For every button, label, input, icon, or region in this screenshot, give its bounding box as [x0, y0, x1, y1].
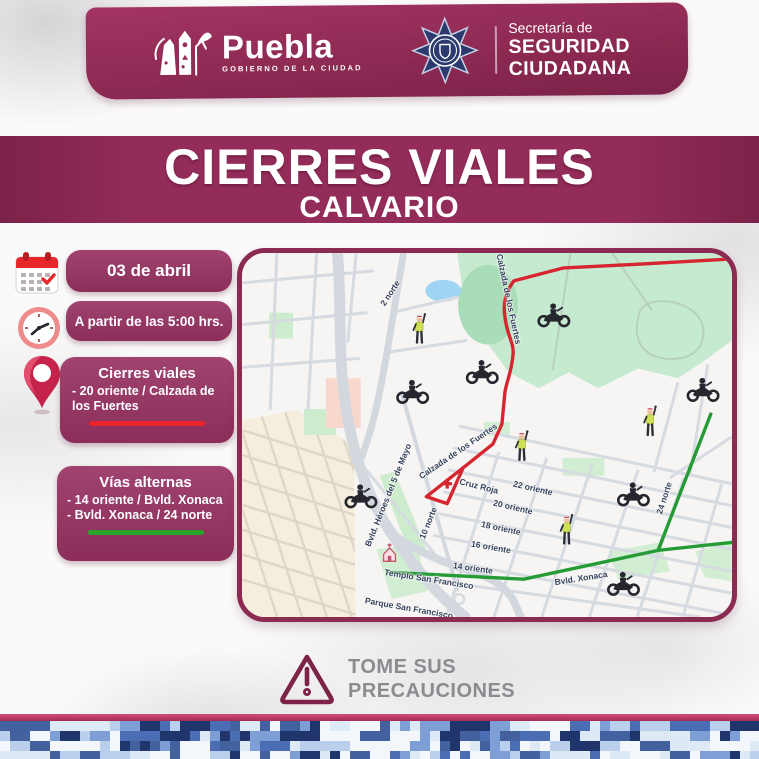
camo-pixel	[320, 731, 330, 741]
camo-pixel	[60, 741, 70, 751]
camo-pixel	[470, 731, 480, 741]
camo-pixel	[460, 751, 470, 759]
camo-pixel	[550, 751, 560, 759]
camo-pixel	[680, 721, 690, 731]
camo-pixel	[320, 721, 330, 731]
camo-pixel	[620, 751, 630, 759]
camo-pixel	[740, 741, 750, 751]
camo-pixel	[150, 731, 160, 741]
camo-pixel	[40, 751, 50, 759]
camo-pixel	[660, 741, 670, 751]
secretaria-line3: CIUDADANA	[509, 58, 632, 79]
camo-pixel	[10, 731, 20, 741]
camo-pixel	[630, 741, 640, 751]
camo-pixel	[260, 721, 270, 731]
camo-pixel	[660, 721, 670, 731]
camo-pixel	[530, 741, 540, 751]
camo-pixel	[130, 731, 140, 741]
camo-pixel	[320, 751, 330, 759]
camo-pixel	[170, 731, 180, 741]
camo-pixel	[660, 731, 670, 741]
camo-pixel	[350, 751, 360, 759]
camo-pixel	[160, 721, 170, 731]
footer-accent-rule	[0, 714, 759, 721]
secretaria-line1: Secretaría de	[508, 20, 631, 35]
camo-pixel	[30, 741, 40, 751]
camo-pixel	[470, 721, 480, 731]
camo-pixel	[200, 741, 210, 751]
camo-pixel	[610, 741, 620, 751]
camo-pixel	[530, 721, 540, 731]
camo-pixel	[270, 741, 280, 751]
camo-pixel	[690, 741, 700, 751]
camo-pixel	[410, 751, 420, 759]
camo-pixel	[640, 721, 650, 731]
camo-pixel	[390, 741, 400, 751]
camo-pixel	[380, 721, 390, 731]
camo-pixel	[200, 751, 210, 759]
camo-pixel	[230, 751, 240, 759]
camo-pixel	[0, 731, 10, 741]
camo-pixel	[180, 741, 190, 751]
camo-pixel	[450, 721, 460, 731]
camo-pixel	[600, 741, 610, 751]
camo-pixel	[350, 741, 360, 751]
camo-pixel	[670, 731, 680, 741]
camo-pixel	[80, 751, 90, 759]
camo-pixel	[580, 731, 590, 741]
camo-pixel	[590, 751, 600, 759]
date-label: 03 de abril	[107, 261, 191, 281]
camo-pixel	[720, 741, 730, 751]
camo-pixel	[430, 751, 440, 759]
camo-pixel	[640, 741, 650, 751]
camo-pixel	[510, 721, 520, 731]
camo-pixel	[0, 741, 10, 751]
camo-pixel	[740, 721, 750, 731]
camo-pixel	[240, 721, 250, 731]
camo-pixel	[500, 731, 510, 741]
camo-pixel	[210, 721, 220, 731]
camo-pixel	[710, 751, 720, 759]
camo-pixel	[750, 741, 759, 751]
camo-pixel	[730, 721, 740, 731]
camo-pixel	[10, 741, 20, 751]
camo-pixel	[650, 751, 660, 759]
time-badge: A partir de las 5:00 hrs.	[66, 301, 232, 341]
camo-pixel	[670, 741, 680, 751]
camo-pixel	[570, 751, 580, 759]
camo-pixel	[290, 751, 300, 759]
camo-pixel	[70, 751, 80, 759]
camo-pixel	[640, 731, 650, 741]
camo-pixel	[390, 731, 400, 741]
camo-pixel	[560, 741, 570, 751]
camo-pixel	[700, 731, 710, 741]
header-divider	[494, 26, 496, 74]
camo-pixel	[170, 721, 180, 731]
camo-pixel	[590, 731, 600, 741]
camo-pixel	[240, 741, 250, 751]
camo-pixel	[540, 741, 550, 751]
camo-pixel	[460, 741, 470, 751]
camo-pixel	[380, 741, 390, 751]
camo-pixel	[160, 751, 170, 759]
camo-pixel	[600, 731, 610, 741]
alternates-item-1: - 14 oriente / Bvld. Xonaca	[67, 493, 224, 508]
location-pin-icon	[18, 352, 66, 416]
camo-pixel	[130, 751, 140, 759]
camo-pixel	[360, 751, 370, 759]
camo-pixel	[70, 721, 80, 731]
camo-pixel	[370, 741, 380, 751]
camo-pixel	[650, 731, 660, 741]
camo-pixel	[200, 721, 210, 731]
camo-pixel	[110, 721, 120, 731]
camo-pixel	[570, 721, 580, 731]
alternates-item-2: - Bvld. Xonaca / 24 norte	[67, 508, 224, 523]
camo-pixel	[410, 731, 420, 741]
camo-pixel	[450, 731, 460, 741]
camo-pixel	[600, 721, 610, 731]
camo-pixel	[570, 741, 580, 751]
camo-pixel	[680, 751, 690, 759]
camo-pixel	[300, 721, 310, 731]
camo-pixel	[70, 731, 80, 741]
camo-pixel	[530, 751, 540, 759]
camo-pixel	[80, 721, 90, 731]
camo-pixel	[650, 721, 660, 731]
camo-pixel	[330, 721, 340, 731]
camo-pixel	[260, 731, 270, 741]
camo-pixel	[240, 731, 250, 741]
camo-pixel	[330, 741, 340, 751]
camo-pixel	[400, 751, 410, 759]
camo-pixel	[460, 721, 470, 731]
closures-title: Cierres viales	[72, 365, 222, 382]
camo-pixel	[410, 741, 420, 751]
camo-pixel	[60, 751, 70, 759]
camo-pixel	[80, 741, 90, 751]
camo-pixel	[580, 721, 590, 731]
camo-pixel	[490, 721, 500, 731]
camo-pixel	[450, 741, 460, 751]
camo-pixel	[730, 751, 740, 759]
camo-pixel	[300, 751, 310, 759]
camo-pixel	[430, 741, 440, 751]
header-banner: Puebla GOBIERNO DE LA CIUDAD Secretaría …	[86, 2, 689, 99]
camo-pixel	[110, 751, 120, 759]
camo-pixel	[300, 731, 310, 741]
camo-pixel	[280, 751, 290, 759]
camo-pixel	[10, 751, 20, 759]
camo-pixel	[310, 731, 320, 741]
camo-pixel	[580, 741, 590, 751]
secretaria-line2: SEGURIDAD	[508, 37, 631, 58]
camo-pixel	[730, 731, 740, 741]
camo-pixel	[710, 731, 720, 741]
camo-pixel	[610, 751, 620, 759]
camo-pixel	[120, 741, 130, 751]
camo-pixel	[480, 721, 490, 731]
camo-pixel	[50, 731, 60, 741]
camo-pixel	[280, 741, 290, 751]
camo-pixel	[440, 721, 450, 731]
camo-pixel	[20, 731, 30, 741]
camo-pixel	[460, 731, 470, 741]
camo-pixel	[510, 731, 520, 741]
camo-pixel	[40, 731, 50, 741]
camo-pixel	[620, 741, 630, 751]
camo-pixel	[520, 731, 530, 741]
camo-pixel	[520, 741, 530, 751]
road-closure-map: 2 norteCalzada de los FuertesCalzada de …	[237, 248, 737, 622]
camo-pixel	[370, 731, 380, 741]
camo-pixel	[150, 721, 160, 731]
camo-pixel	[480, 741, 490, 751]
camo-pixel	[510, 751, 520, 759]
camo-pixel	[190, 721, 200, 731]
camo-pixel	[610, 721, 620, 731]
camo-pixel	[90, 731, 100, 741]
camo-pixel	[360, 741, 370, 751]
camo-pixel	[650, 741, 660, 751]
camo-pixel	[400, 741, 410, 751]
camo-pixel	[210, 731, 220, 741]
camo-pixel	[10, 721, 20, 731]
camo-pixel	[750, 721, 759, 731]
camo-pixel	[630, 751, 640, 759]
camo-pixel	[140, 741, 150, 751]
camo-pixel	[250, 741, 260, 751]
camo-pixel	[90, 751, 100, 759]
camo-pixel	[380, 731, 390, 741]
warning-triangle-icon	[278, 652, 336, 706]
camo-pixel	[540, 731, 550, 741]
camo-pixel	[100, 751, 110, 759]
camo-pixel	[140, 751, 150, 759]
camo-pixel	[110, 741, 120, 751]
camo-pixel	[250, 721, 260, 731]
camo-pixel	[360, 731, 370, 741]
camo-pixel	[400, 721, 410, 731]
camo-pixel	[390, 721, 400, 731]
camo-pixel	[370, 721, 380, 731]
camo-pixel	[700, 721, 710, 731]
camo-pixel	[420, 741, 430, 751]
camo-pixel	[170, 741, 180, 751]
puebla-city-logo: Puebla GOBIERNO DE LA CIUDAD	[152, 23, 363, 81]
camo-pixel	[180, 721, 190, 731]
camo-pixel	[240, 751, 250, 759]
closures-item: - 20 oriente / Calzada de los Fuertes	[72, 384, 222, 414]
camo-pixel	[490, 751, 500, 759]
alternates-title: Vías alternas	[67, 474, 224, 491]
camo-pixel	[190, 741, 200, 751]
camo-pixel	[90, 741, 100, 751]
title-band: CIERRES VIALES CALVARIO	[0, 136, 759, 223]
camo-pixel	[120, 751, 130, 759]
police-badge-icon	[408, 14, 481, 87]
camo-pixel	[490, 741, 500, 751]
camo-pixel	[450, 751, 460, 759]
camo-pixel	[480, 731, 490, 741]
time-label: A partir de las 5:00 hrs.	[75, 314, 224, 329]
alternate-route-swatch	[88, 530, 204, 535]
camo-pixel	[380, 751, 390, 759]
camo-pixel	[750, 731, 759, 741]
closures-badge: Cierres viales - 20 oriente / Calzada de…	[60, 357, 234, 443]
camo-pixel	[280, 731, 290, 741]
camo-pixel	[560, 751, 570, 759]
camo-pixel	[420, 721, 430, 731]
camo-pixel	[300, 741, 310, 751]
camo-pixel	[30, 721, 40, 731]
camo-pixel	[540, 751, 550, 759]
camo-pixel	[220, 731, 230, 741]
camo-pixel	[140, 721, 150, 731]
camo-pixel	[590, 741, 600, 751]
camo-pixel	[630, 721, 640, 731]
camo-pixel	[340, 731, 350, 741]
camo-pixel	[140, 731, 150, 741]
infographic-page: Puebla GOBIERNO DE LA CIUDAD Secretaría …	[0, 0, 759, 759]
camo-pixel	[630, 731, 640, 741]
camo-pixel	[670, 721, 680, 731]
camo-pixel	[430, 731, 440, 741]
camo-pattern-strip	[0, 721, 759, 759]
camo-pixel	[290, 741, 300, 751]
camo-pixel	[370, 751, 380, 759]
camo-pixel	[220, 741, 230, 751]
camo-pixel	[270, 751, 280, 759]
camo-pixel	[720, 721, 730, 731]
camo-pixel	[260, 741, 270, 751]
camo-pixel	[660, 751, 670, 759]
camo-pixel	[250, 731, 260, 741]
camo-pixel	[680, 731, 690, 741]
camo-pixel	[560, 731, 570, 741]
camo-pixel	[730, 741, 740, 751]
camo-pixel	[180, 731, 190, 741]
camo-pixel	[350, 731, 360, 741]
camo-pixel	[260, 751, 270, 759]
closure-route-swatch	[89, 421, 205, 426]
camo-pixel	[410, 721, 420, 731]
warning-text: TOME SUS PRECAUCIONES	[348, 655, 515, 703]
camo-pixel	[230, 721, 240, 731]
camo-pixel	[580, 751, 590, 759]
camo-pixel	[680, 741, 690, 751]
camo-pixel	[280, 721, 290, 731]
camo-pixel	[690, 751, 700, 759]
camo-pixel	[440, 741, 450, 751]
camo-pixel	[700, 741, 710, 751]
page-subtitle: CALVARIO	[0, 193, 759, 223]
camo-pixel	[420, 731, 430, 741]
camo-pixel	[70, 741, 80, 751]
camo-pixel	[190, 731, 200, 741]
camo-pixel	[560, 721, 570, 731]
camo-pixel	[130, 741, 140, 751]
camo-pixel	[60, 721, 70, 731]
camo-pixel	[310, 741, 320, 751]
camo-pixel	[20, 751, 30, 759]
camo-pixel	[290, 721, 300, 731]
camo-pixel	[130, 721, 140, 731]
camo-pixel	[320, 741, 330, 751]
camo-pixel	[740, 731, 750, 741]
camo-pixel	[0, 721, 10, 731]
camo-pixel	[120, 731, 130, 741]
camo-pixel	[190, 751, 200, 759]
camo-pixel	[180, 751, 190, 759]
camo-pixel	[710, 741, 720, 751]
camo-pixel	[590, 721, 600, 731]
camo-pixel	[220, 721, 230, 731]
camo-pixel	[720, 731, 730, 741]
camo-pixel	[500, 741, 510, 751]
camo-pixel	[100, 741, 110, 751]
camo-pixel	[250, 751, 260, 759]
camo-pixel	[470, 751, 480, 759]
camo-pixel	[750, 751, 759, 759]
camo-pixel	[550, 731, 560, 741]
camo-pixel	[420, 751, 430, 759]
camo-pixel	[210, 741, 220, 751]
camo-pixel	[330, 731, 340, 741]
camo-pixel	[30, 731, 40, 741]
camo-pixel	[0, 751, 10, 759]
camo-pixel	[160, 731, 170, 741]
camo-pixel	[620, 731, 630, 741]
camo-pixel	[310, 751, 320, 759]
camo-pixel	[50, 721, 60, 731]
camo-pixel	[50, 751, 60, 759]
camo-pixel	[150, 741, 160, 751]
camo-pixel	[570, 731, 580, 741]
secretaria-logotype: Secretaría de SEGURIDAD CIUDADANA	[508, 20, 631, 79]
camo-pixel	[700, 751, 710, 759]
camo-pixel	[610, 731, 620, 741]
camo-pixel	[530, 731, 540, 741]
camo-pixel	[60, 731, 70, 741]
camo-pixel	[670, 751, 680, 759]
calendar-icon	[12, 249, 62, 297]
page-title: CIERRES VIALES	[0, 141, 759, 193]
camo-pixel	[330, 751, 340, 759]
camo-pixel	[40, 741, 50, 751]
camo-pixel	[350, 721, 360, 731]
camo-pixel	[690, 731, 700, 741]
camo-pixel	[490, 731, 500, 741]
camo-pixel	[80, 731, 90, 741]
camo-pixel	[20, 741, 30, 751]
puebla-tagline: GOBIERNO DE LA CIUDAD	[222, 63, 363, 73]
camo-pixel	[550, 741, 560, 751]
camo-pixel	[510, 741, 520, 751]
camo-pixel	[310, 721, 320, 731]
warning-line1: TOME SUS	[348, 655, 515, 679]
camo-pixel	[160, 741, 170, 751]
camo-pixel	[100, 731, 110, 741]
camo-pixel	[30, 751, 40, 759]
puebla-logo-icon	[152, 25, 214, 82]
camo-pixel	[230, 741, 240, 751]
camo-pixel	[150, 751, 160, 759]
camo-pixel	[40, 721, 50, 731]
camo-pixel	[400, 731, 410, 741]
